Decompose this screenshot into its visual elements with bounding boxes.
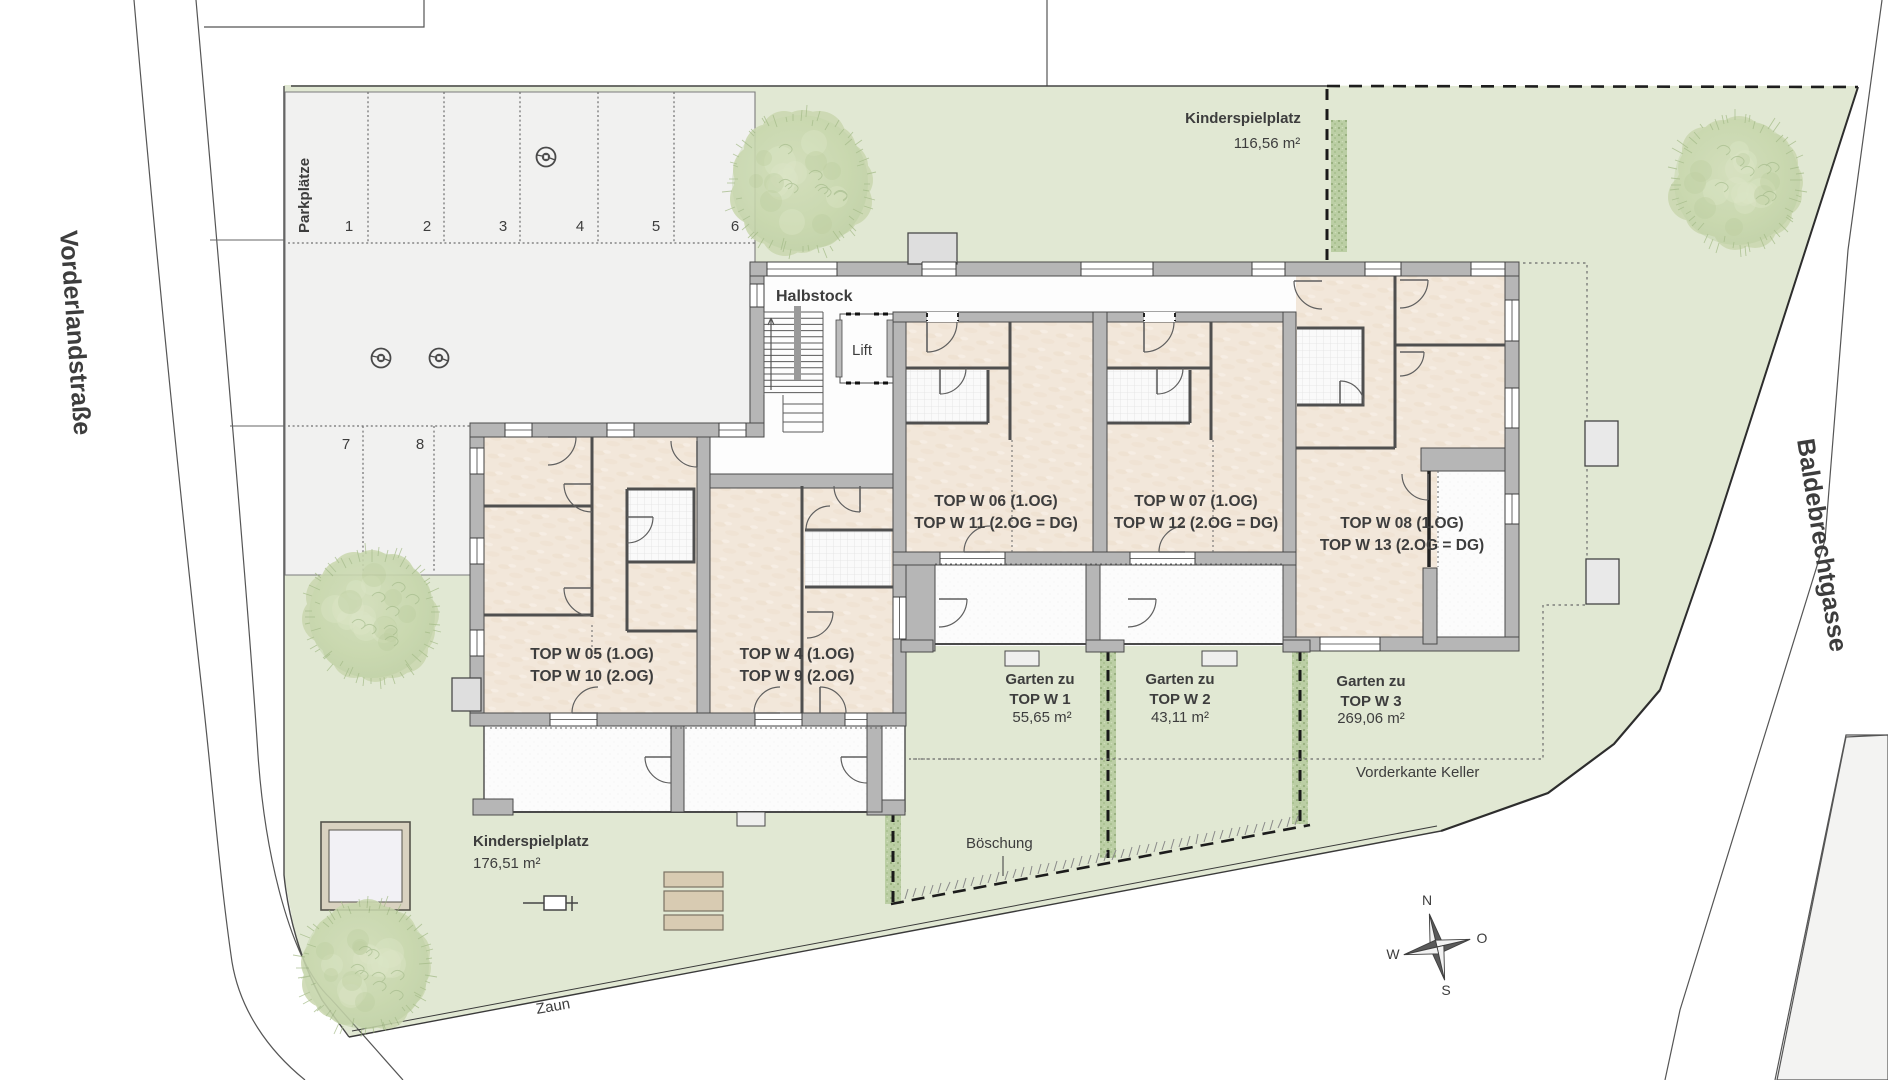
svg-text:TOP W 1: TOP W 1 <box>1009 691 1070 708</box>
svg-text:55,65 m²: 55,65 m² <box>1012 709 1071 726</box>
svg-text:N: N <box>1422 892 1432 908</box>
svg-text:Lift: Lift <box>852 342 873 359</box>
svg-text:Garten zu: Garten zu <box>1336 673 1405 690</box>
svg-text:4: 4 <box>576 218 584 235</box>
svg-text:Kinderspielplatz: Kinderspielplatz <box>473 833 589 850</box>
svg-text:TOP W 2: TOP W 2 <box>1149 691 1210 708</box>
svg-text:TOP W 07 (1.OG): TOP W 07 (1.OG) <box>1134 493 1257 510</box>
svg-text:269,06 m²: 269,06 m² <box>1337 710 1405 727</box>
svg-text:TOP W 4 (1.OG): TOP W 4 (1.OG) <box>740 646 855 663</box>
svg-text:TOP W 13 (2.OG = DG): TOP W 13 (2.OG = DG) <box>1320 537 1484 554</box>
svg-text:43,11 m²: 43,11 m² <box>1151 709 1209 726</box>
svg-text:5: 5 <box>652 218 660 235</box>
svg-text:116,56 m²: 116,56 m² <box>1234 135 1300 152</box>
svg-text:Vorderkante Keller: Vorderkante Keller <box>1356 764 1479 781</box>
svg-text:6: 6 <box>731 218 739 235</box>
svg-text:176,51 m²: 176,51 m² <box>473 855 541 872</box>
svg-text:TOP W 08 (1.OG): TOP W 08 (1.OG) <box>1340 515 1463 532</box>
svg-text:W: W <box>1386 946 1400 962</box>
svg-text:Parkplätze: Parkplätze <box>296 158 313 233</box>
svg-text:2: 2 <box>423 218 431 235</box>
svg-text:TOP W 05 (1.OG): TOP W 05 (1.OG) <box>530 646 653 663</box>
svg-text:S: S <box>1441 982 1450 998</box>
svg-text:3: 3 <box>499 218 507 235</box>
svg-text:Halbstock: Halbstock <box>776 288 853 305</box>
svg-text:8: 8 <box>416 436 424 453</box>
svg-text:Böschung: Böschung <box>966 835 1033 852</box>
svg-text:TOP W 11 (2.OG = DG): TOP W 11 (2.OG = DG) <box>914 515 1078 532</box>
svg-text:Kinderspielplatz: Kinderspielplatz <box>1185 110 1301 127</box>
svg-text:TOP W 9 (2.OG): TOP W 9 (2.OG) <box>740 668 855 685</box>
svg-text:O: O <box>1477 930 1488 946</box>
svg-text:TOP W 06 (1.OG): TOP W 06 (1.OG) <box>934 493 1057 510</box>
svg-text:7: 7 <box>342 436 350 453</box>
svg-text:TOP W 3: TOP W 3 <box>1340 693 1401 710</box>
svg-text:1: 1 <box>345 218 353 235</box>
svg-text:Garten zu: Garten zu <box>1145 671 1214 688</box>
svg-text:TOP W 10 (2.OG): TOP W 10 (2.OG) <box>530 668 653 685</box>
svg-text:TOP W 12 (2.OG = DG): TOP W 12 (2.OG = DG) <box>1114 515 1278 532</box>
svg-text:Garten zu: Garten zu <box>1005 671 1074 688</box>
